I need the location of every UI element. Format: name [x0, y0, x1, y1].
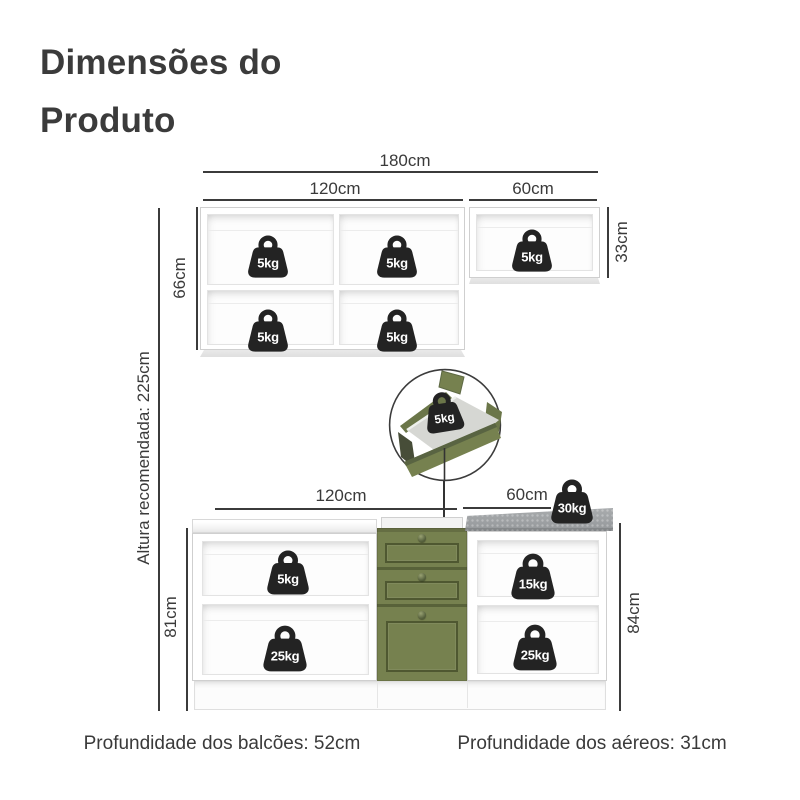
upper-cabinet-left-underside	[200, 350, 465, 357]
uppers-depth-note: Profundidade dos aéreos: 31cm	[457, 733, 726, 755]
upper-left-height-label: 66cm	[170, 257, 190, 299]
green-drawer-unit	[377, 528, 467, 681]
plinth-seam	[467, 683, 468, 708]
upper-left-width-line	[203, 199, 463, 201]
lower-left-height-label: 81cm	[161, 596, 181, 638]
drawer-panel	[385, 581, 459, 600]
weight-value: 5kg	[386, 330, 408, 345]
upper-right-width-label: 60cm	[512, 179, 554, 199]
lower-right-height-label: 84cm	[624, 592, 644, 634]
weight-badge: 5kg	[245, 309, 291, 353]
weight-badge: 30kg	[548, 479, 596, 525]
weight-badge: 5kg	[264, 550, 312, 596]
lower-left-width-label: 120cm	[315, 486, 366, 506]
upper-right-height-line	[607, 207, 609, 278]
weight-badge: 5kg	[509, 229, 555, 273]
upper-right-width-line	[469, 199, 597, 201]
magnifier-circle-icon: 5kg	[388, 368, 502, 482]
drawer-detail-callout: 5kg	[388, 368, 502, 482]
weight-value: 5kg	[277, 572, 299, 587]
drawer	[377, 570, 467, 604]
upper-left-height-line	[196, 207, 198, 350]
plinth-seam	[377, 683, 378, 708]
weight-value: 5kg	[521, 250, 543, 265]
weight-value: 5kg	[257, 256, 279, 271]
upper-cabinet-left	[200, 207, 465, 350]
weight-badge: 25kg	[510, 624, 560, 672]
recommended-height-label: Altura recomendada: 225cm	[134, 351, 154, 565]
weight-badge: 5kg	[374, 309, 420, 353]
lower-left-width-line	[215, 508, 457, 510]
upper-total-width-label: 180cm	[379, 151, 430, 171]
lower-right-width-line	[463, 507, 551, 509]
weight-badge: 5kg	[245, 235, 291, 279]
drawer-knob	[418, 573, 426, 581]
lower-left-height-line	[186, 528, 188, 711]
drawer-panel	[386, 621, 458, 672]
weight-value: 5kg	[257, 330, 279, 345]
lower-right-height-line	[619, 523, 621, 711]
drawer-knob	[418, 611, 426, 619]
weight-value: 15kg	[519, 576, 547, 591]
plinth-base	[194, 681, 606, 710]
drawer	[377, 530, 467, 567]
upper-total-width-line	[203, 171, 598, 173]
drawer-door	[377, 607, 467, 678]
weight-value: 25kg	[271, 648, 299, 663]
product-dimensions-diagram: Dimensões do Produto 180cm 120cm 60cm Al…	[0, 0, 800, 800]
weight-badge: 5kg	[374, 235, 420, 279]
weight-badge: 25kg	[260, 625, 310, 673]
drawer-panel	[385, 543, 459, 563]
drawer-knob	[418, 534, 426, 542]
counters-depth-note: Profundidade dos balcões: 52cm	[84, 733, 361, 755]
upper-right-height-label: 33cm	[612, 221, 632, 263]
upper-cabinet-right-underside	[469, 278, 600, 284]
weight-value: 5kg	[386, 256, 408, 271]
page-title: Dimensões do Produto	[40, 34, 410, 150]
lower-left-countertop	[192, 519, 377, 533]
weight-value: 30kg	[558, 501, 586, 516]
weight-value: 25kg	[521, 647, 549, 662]
recommended-height-line	[158, 208, 160, 711]
lower-right-width-label: 60cm	[506, 485, 548, 505]
upper-left-width-label: 120cm	[309, 179, 360, 199]
weight-badge: 15kg	[508, 553, 558, 601]
